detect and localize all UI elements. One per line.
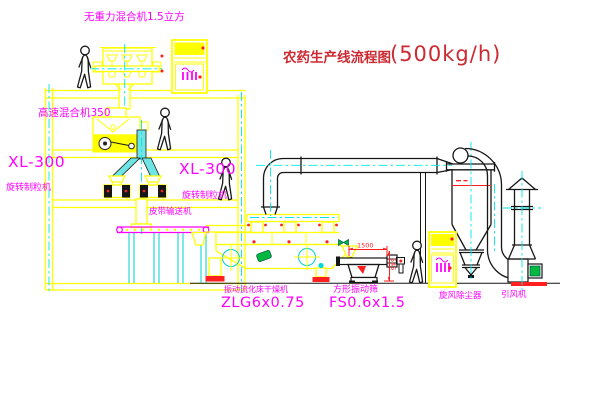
process-flow-diagram: 1500 545 无重力混合机1.5立方 农药生产线流程图 (500kg/h) … — [0, 0, 600, 403]
control-cabinet-lower — [429, 232, 456, 287]
diagram-title-capacity: (500kg/h) — [390, 44, 501, 65]
label-gravity-mixer: 无重力混合机1.5立方 — [84, 12, 185, 23]
gravity-mixer-drawing — [90, 44, 164, 112]
fluid-bed-dryer-drawing — [192, 215, 357, 283]
exhaust-duct — [256, 150, 453, 216]
dim-sieve-length: 1500 — [357, 242, 374, 250]
person-figure-2 — [158, 108, 171, 150]
fan-drawing — [508, 259, 547, 286]
person-figure-1 — [78, 46, 91, 88]
label-high-speed-mixer: 高速混合机350 — [38, 108, 111, 119]
dim-sieve-height: 545 — [389, 258, 397, 270]
label-dryer-name: 振动流化床干燥机 — [224, 286, 288, 294]
label-sieve-name: 方形振动筛 — [333, 286, 378, 295]
label-granulator-right-model: XL-300 — [179, 162, 236, 178]
person-figure-4 — [410, 241, 423, 283]
label-cyclone: 旋风除尘器 — [439, 292, 482, 301]
label-granulator-left-model: XL-300 — [8, 155, 65, 171]
label-belt-conveyor: 皮带输送机 — [149, 208, 192, 217]
granulator-right-drawing — [140, 176, 166, 200]
label-fan: 引风机 — [501, 291, 527, 300]
label-dryer-model: ZLG6x0.75 — [221, 296, 305, 311]
label-sieve-model: FS0.6x1.5 — [329, 296, 406, 311]
diagram-title: 农药生产线流程图 — [283, 52, 391, 66]
label-granulator-right-name: 旋转制粒机 — [182, 192, 227, 201]
duct-support-post — [421, 173, 426, 284]
control-cabinet-upper — [172, 40, 207, 93]
granulator-left-drawing — [104, 176, 130, 200]
label-granulator-left-name: 旋转制粒机 — [6, 184, 51, 193]
